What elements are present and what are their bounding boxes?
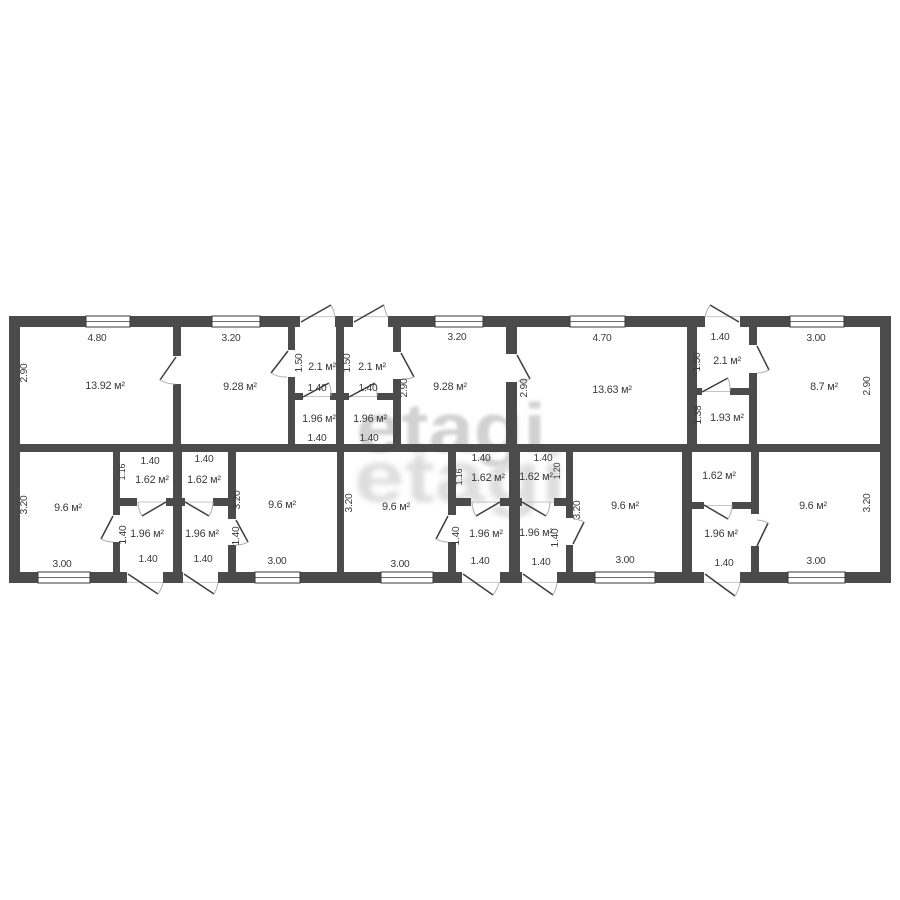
svg-text:1.96 м²: 1.96 м² [302, 413, 336, 425]
svg-text:2.1 м²: 2.1 м² [308, 361, 336, 373]
svg-text:3.00: 3.00 [806, 556, 826, 567]
svg-text:1.40: 1.40 [470, 556, 490, 567]
svg-text:1.40: 1.40 [471, 453, 491, 464]
svg-text:1.93 м²: 1.93 м² [710, 412, 744, 424]
svg-text:1.40: 1.40 [307, 433, 327, 444]
svg-text:1.40: 1.40 [550, 528, 561, 548]
svg-text:1.40: 1.40 [118, 525, 129, 545]
svg-text:1.50: 1.50 [342, 353, 353, 373]
svg-text:1.40: 1.40 [710, 332, 730, 343]
svg-text:1.20: 1.20 [552, 462, 562, 479]
svg-text:1.62 м²: 1.62 м² [187, 474, 221, 486]
svg-text:1.38: 1.38 [693, 405, 704, 425]
svg-text:3.00: 3.00 [390, 559, 410, 570]
svg-text:4.80: 4.80 [87, 333, 107, 344]
svg-text:1.40: 1.40 [451, 526, 462, 546]
svg-text:1.40: 1.40 [140, 456, 160, 467]
svg-text:2.90: 2.90 [19, 363, 30, 383]
svg-text:1.40: 1.40 [533, 453, 553, 464]
svg-text:1.16: 1.16 [454, 468, 464, 485]
svg-text:1.40: 1.40 [231, 526, 242, 546]
svg-text:1.40: 1.40 [359, 433, 379, 444]
svg-text:1.40: 1.40 [714, 558, 734, 569]
svg-text:3.00: 3.00 [267, 556, 287, 567]
svg-text:1.96 м²: 1.96 м² [704, 528, 738, 540]
svg-text:2.90: 2.90 [399, 378, 410, 398]
svg-text:1.96 м²: 1.96 м² [519, 527, 553, 539]
svg-text:13.92 м²: 13.92 м² [85, 380, 125, 392]
svg-text:1.50: 1.50 [692, 352, 703, 372]
svg-text:2.90: 2.90 [519, 378, 530, 398]
svg-text:9.6 м²: 9.6 м² [268, 499, 296, 511]
svg-text:1.62 м²: 1.62 м² [519, 471, 553, 483]
svg-text:3.20: 3.20 [344, 493, 355, 513]
svg-text:1.62 м²: 1.62 м² [702, 470, 736, 482]
svg-text:1.40: 1.40 [138, 554, 158, 565]
svg-text:1.40: 1.40 [531, 557, 551, 568]
svg-text:9.6 м²: 9.6 м² [611, 500, 639, 512]
svg-text:1.96 м²: 1.96 м² [469, 528, 503, 540]
svg-text:3.00: 3.00 [615, 555, 635, 566]
svg-text:13.63 м²: 13.63 м² [592, 384, 632, 396]
svg-text:4.70: 4.70 [592, 333, 612, 344]
svg-text:1.96 м²: 1.96 м² [353, 413, 387, 425]
svg-text:1.16: 1.16 [117, 463, 127, 480]
svg-text:1.40: 1.40 [307, 383, 327, 394]
svg-text:9.6 м²: 9.6 м² [54, 502, 82, 514]
svg-text:9.6 м²: 9.6 м² [799, 500, 827, 512]
svg-text:1.62 м²: 1.62 м² [135, 474, 169, 486]
svg-text:1.62 м²: 1.62 м² [471, 472, 505, 484]
svg-text:1.40: 1.40 [194, 454, 214, 465]
svg-text:3.20: 3.20 [19, 495, 30, 515]
svg-text:1.50: 1.50 [294, 353, 305, 373]
svg-text:9.28 м²: 9.28 м² [223, 381, 257, 393]
svg-text:3.20: 3.20 [221, 333, 241, 344]
svg-text:3.20: 3.20 [232, 490, 243, 510]
svg-text:9.6 м²: 9.6 м² [382, 501, 410, 513]
svg-text:3.20: 3.20 [862, 493, 873, 513]
svg-text:1.96 м²: 1.96 м² [185, 528, 219, 540]
svg-text:2.1 м²: 2.1 м² [713, 355, 741, 367]
svg-text:1.96 м²: 1.96 м² [130, 528, 164, 540]
svg-text:3.20: 3.20 [572, 500, 583, 520]
svg-text:3.00: 3.00 [52, 559, 72, 570]
svg-text:8.7 м²: 8.7 м² [810, 381, 838, 393]
svg-text:2.1 м²: 2.1 м² [358, 361, 386, 373]
svg-text:1.40: 1.40 [358, 383, 378, 394]
svg-text:3.20: 3.20 [447, 332, 467, 343]
svg-text:9.28 м²: 9.28 м² [433, 381, 467, 393]
svg-text:2.90: 2.90 [862, 376, 873, 396]
svg-text:3.00: 3.00 [806, 333, 826, 344]
svg-text:1.40: 1.40 [193, 554, 213, 565]
